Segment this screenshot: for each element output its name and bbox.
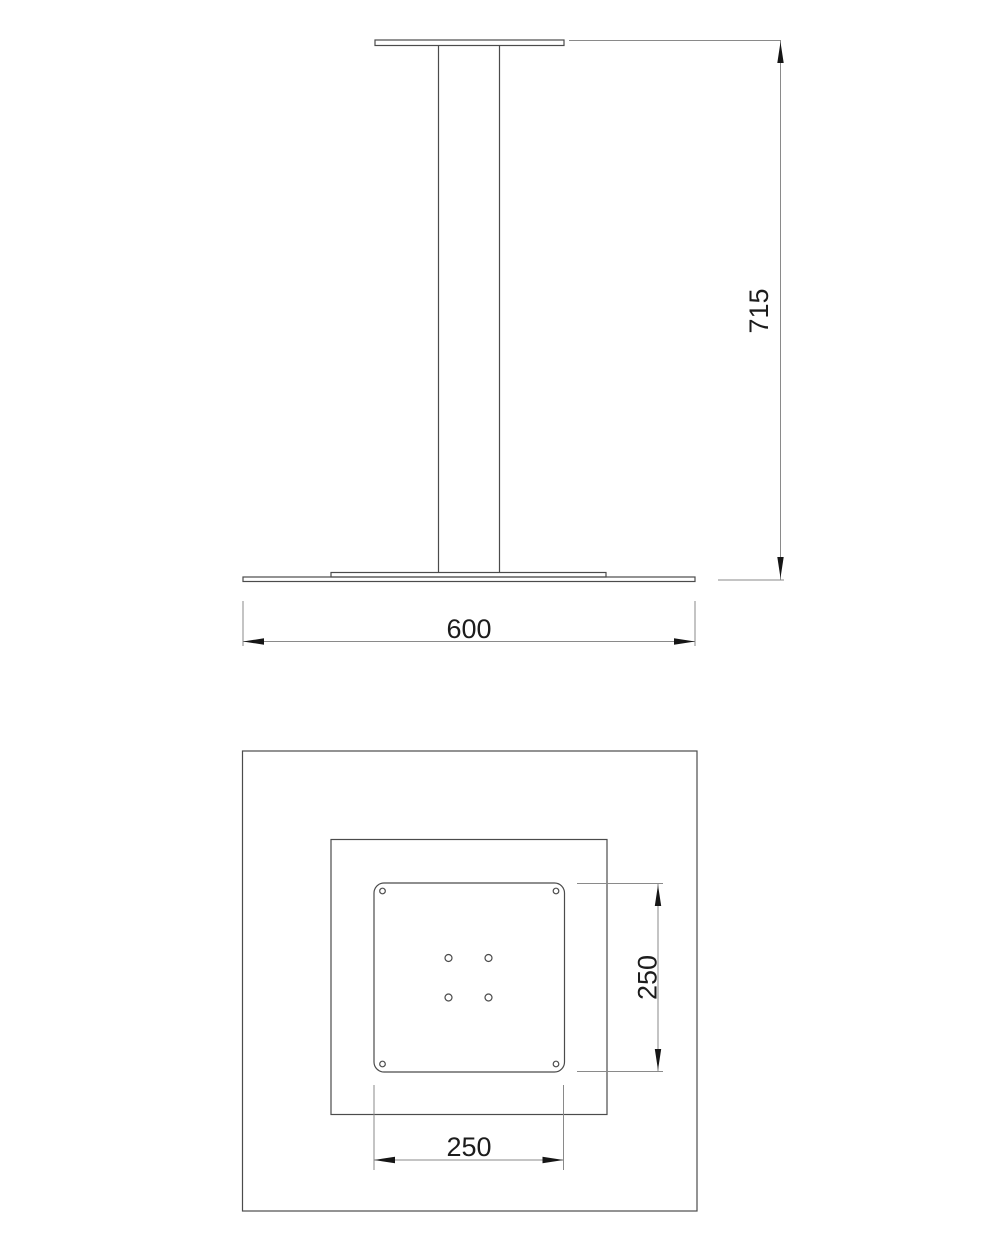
front-elevation-object-lines	[243, 40, 695, 582]
riser-plate-edge	[331, 573, 606, 578]
corner-hole	[553, 1061, 559, 1067]
drawing-canvas: 715 600	[0, 0, 1000, 1250]
arrow-left-icon	[243, 638, 264, 644]
dimension-label-plate-height: 250	[633, 955, 663, 1000]
top-plate-edge	[375, 40, 564, 46]
bolt-hole	[485, 994, 492, 1001]
dimension-label-width: 600	[446, 614, 491, 644]
dimension-label-height: 715	[744, 288, 774, 333]
corner-hole	[380, 1061, 386, 1067]
arrow-left-icon	[374, 1157, 395, 1163]
arrow-up-icon	[777, 42, 783, 63]
bolt-hole	[485, 955, 492, 962]
dimension-label-plate-width: 250	[446, 1132, 491, 1162]
dimension-height-715: 715	[569, 41, 784, 581]
plan-view: 250 250	[243, 751, 698, 1211]
arrow-up-icon	[655, 885, 661, 906]
mounting-plate-outline	[374, 883, 565, 1072]
dimension-width-600: 600	[243, 601, 695, 646]
dimension-plate-width-250: 250	[374, 1085, 564, 1170]
riser-plate-outline	[331, 840, 607, 1115]
dimension-plate-height-250: 250	[577, 884, 663, 1072]
technical-drawing-page: 715 600	[0, 0, 1000, 1250]
bolt-hole	[445, 955, 452, 962]
arrow-down-icon	[655, 1049, 661, 1070]
corner-hole	[553, 888, 559, 894]
front-elevation-view: 715 600	[243, 40, 784, 646]
bolt-hole	[445, 994, 452, 1001]
base-plate-edge	[243, 577, 695, 582]
arrow-right-icon	[674, 638, 695, 644]
arrow-right-icon	[543, 1157, 564, 1163]
corner-hole	[380, 888, 386, 894]
arrow-down-icon	[777, 557, 783, 578]
